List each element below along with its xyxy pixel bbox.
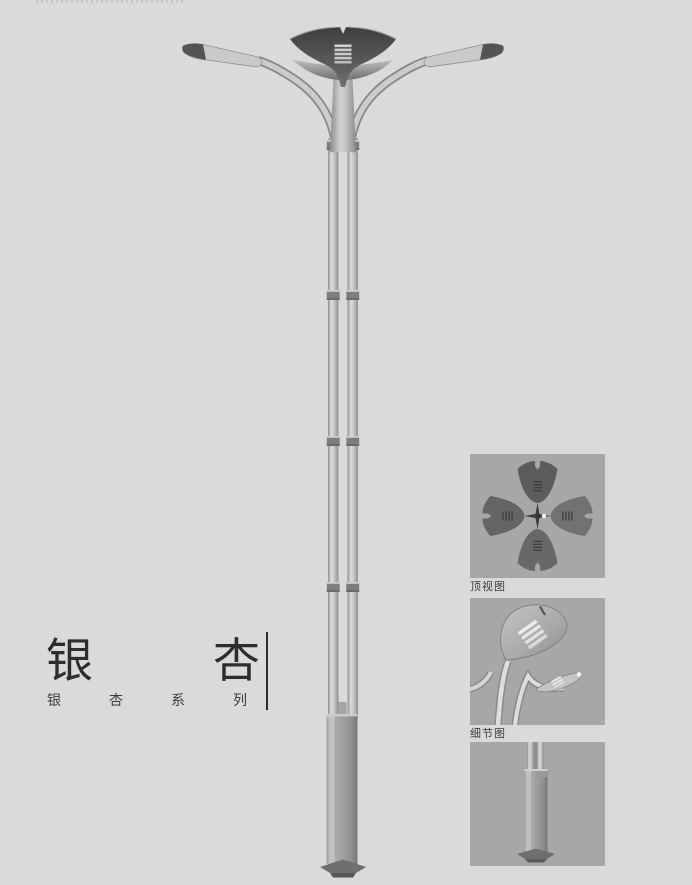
series-title: 银杏 — [46, 637, 380, 684]
thumbnail-caption: 细节图 — [470, 729, 605, 740]
thumbnail-detail-view: 细节图 — [470, 598, 605, 740]
twin-tube-pole — [328, 138, 358, 718]
left-lamp-arm — [182, 44, 337, 152]
catalog-page: 银杏 银杏系列 — [0, 0, 692, 885]
top-view-image — [470, 454, 605, 578]
right-lamp-arm — [349, 44, 504, 152]
title-divider-line — [266, 632, 268, 710]
base-view-image — [470, 742, 605, 866]
detail-view-image — [470, 598, 605, 725]
series-subtitle: 银杏系列 — [47, 693, 295, 707]
thumbnail-top-view: 顶视图 — [470, 454, 605, 593]
thumbnail-base-view — [470, 742, 605, 866]
ginkgo-leaf-crown — [290, 27, 396, 87]
thumbnail-caption: 顶视图 — [470, 582, 605, 593]
square-base-column — [327, 702, 358, 864]
